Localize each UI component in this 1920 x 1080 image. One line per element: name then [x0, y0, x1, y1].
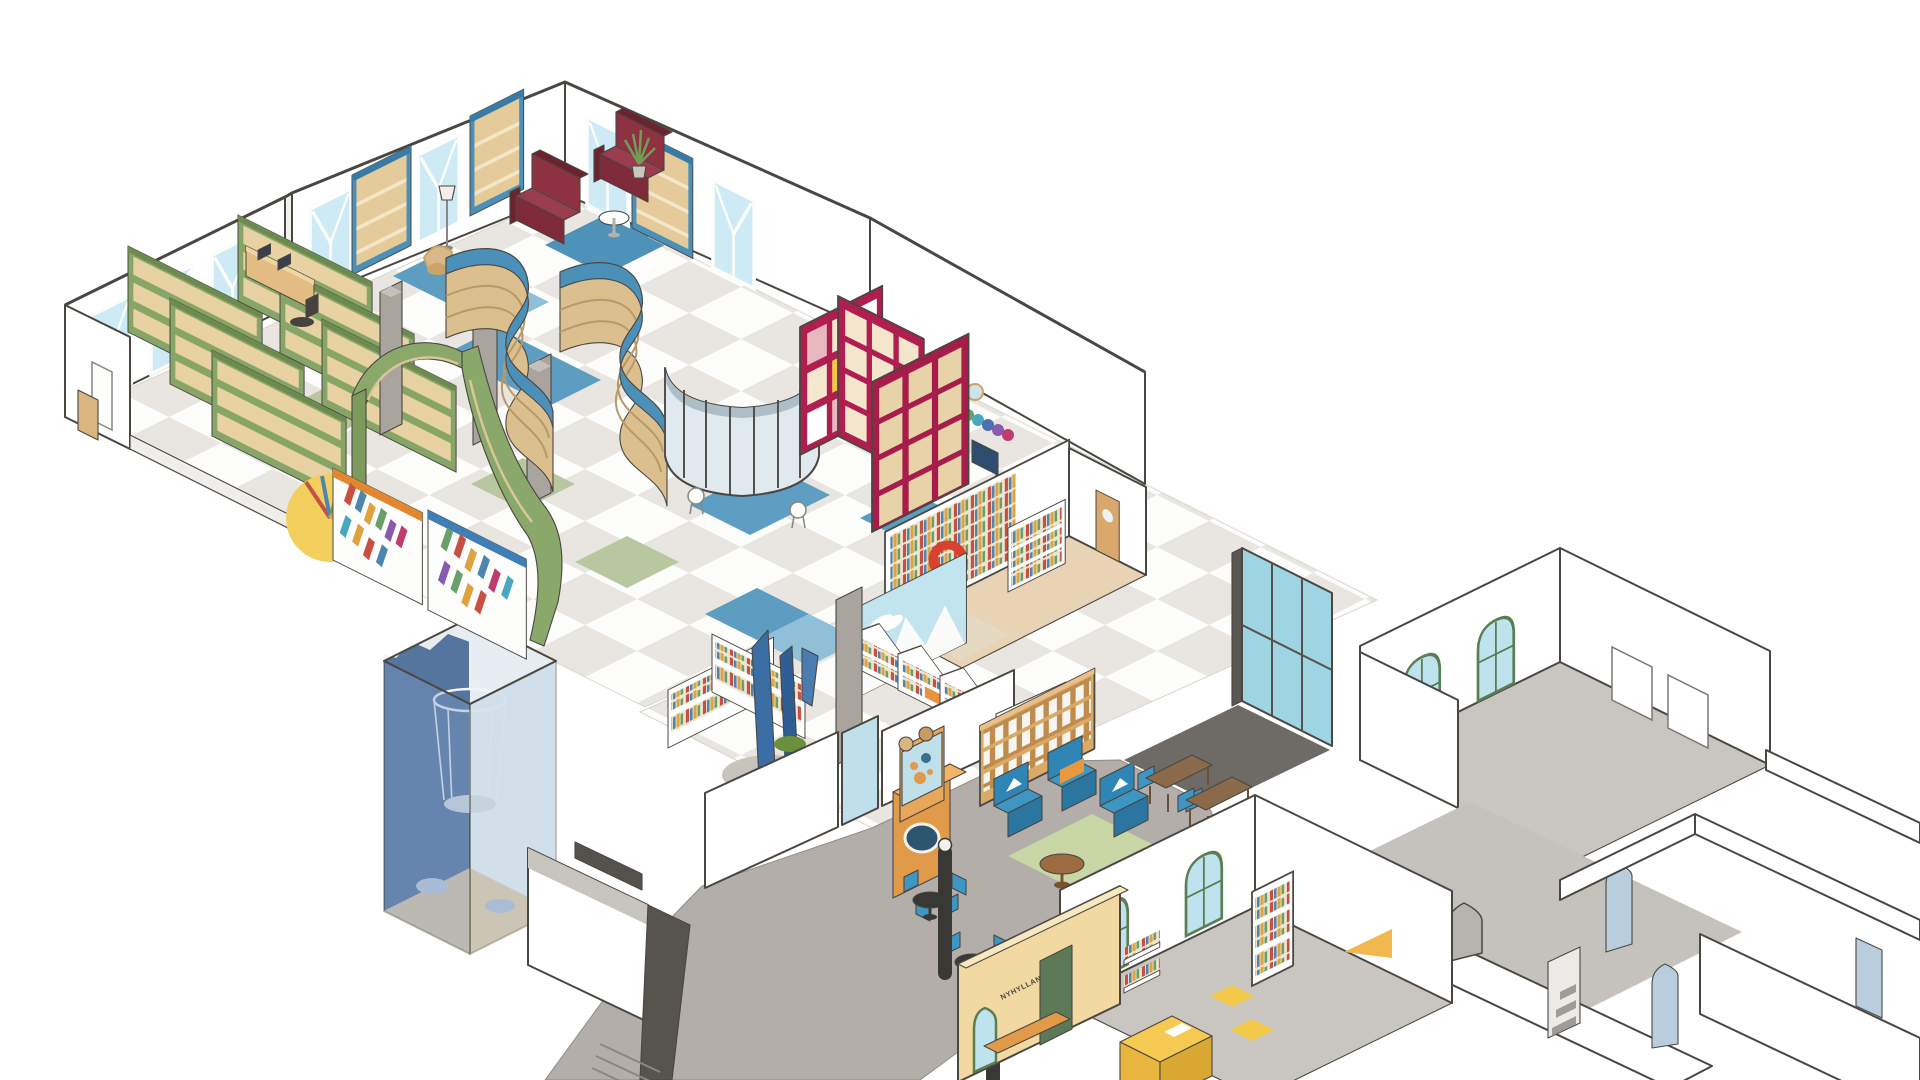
glass-door	[842, 716, 878, 825]
library-floorplan-illustration: TIDSKRIFTER	[0, 0, 1920, 1080]
arched-window	[974, 1008, 996, 1072]
swing-door	[1856, 938, 1882, 1018]
group-room-large	[1360, 548, 1770, 863]
stairwell	[1548, 947, 1580, 1038]
isometric-library-scene: TIDSKRIFTER	[0, 0, 1920, 1080]
swing-door	[1606, 864, 1632, 952]
bollard	[938, 839, 952, 981]
clock-face	[905, 824, 939, 852]
door-round-window	[1096, 490, 1119, 562]
swing-door	[1652, 964, 1678, 1048]
white-bookcase	[1252, 871, 1293, 986]
